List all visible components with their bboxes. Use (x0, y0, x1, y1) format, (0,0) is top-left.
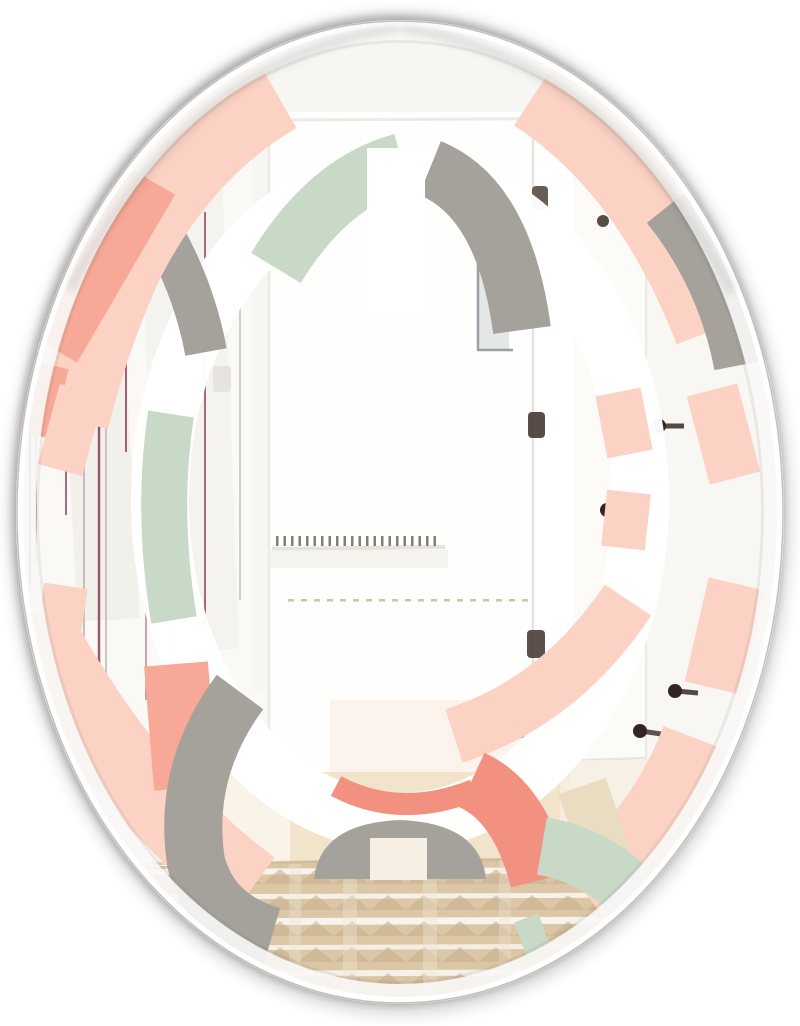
bed-fringe-row-dash (276, 536, 279, 546)
rug-triangle-rows-triangle (586, 973, 622, 988)
bed-fringe-row-dash (314, 536, 317, 546)
bed-fringe-row-dash (336, 536, 339, 546)
rug-triangle-rows-triangle (514, 997, 550, 1012)
mirror-layers (0, 0, 800, 1026)
door-hinge (528, 412, 545, 438)
back-rug-dot-line-dash (314, 599, 320, 602)
bed-fringe-row-dash (404, 536, 407, 546)
rug-triangle-rows-triangle (190, 997, 226, 1012)
bed-shadow-line (272, 547, 445, 549)
pink-block-right-2 (713, 584, 737, 688)
white-notch-top (367, 148, 425, 312)
mint-arc-left (164, 414, 174, 620)
back-rug-dot-line-dash (340, 599, 346, 602)
back-rug-dot-line-dash (522, 599, 528, 602)
bed-fringe-row-dash (381, 536, 384, 546)
wall-hook-head (633, 724, 647, 738)
bed-fringe-row-dash (344, 536, 347, 546)
back-rug-dot-line-dash (470, 599, 476, 602)
back-rug-dot-line-dash (327, 599, 333, 602)
pink-block-left (60, 390, 82, 470)
bed-fringe-row-dash (419, 536, 422, 546)
back-rug-dot-line-dash (496, 599, 502, 602)
back-rug-dot-line-dash (379, 599, 385, 602)
bed-fringe-row-dash (351, 536, 354, 546)
back-rug-dot-line-dash (392, 599, 398, 602)
bed-fringe-row-dash (284, 536, 287, 546)
back-rug-dot-line-dash (509, 599, 515, 602)
gray-dome-notch (370, 838, 427, 880)
under-bed-soft (268, 550, 448, 568)
back-rug-dot-line-dash (353, 599, 359, 602)
back-rug-dot-line-dash (301, 599, 307, 602)
rug-triangle-rows-triangle (550, 973, 586, 988)
back-rug-dot-line-dash (483, 599, 489, 602)
rug-triangle-rows-triangle (586, 997, 622, 1012)
back-rug-dot-line-dash (288, 599, 294, 602)
bed-fringe-row-dash (291, 536, 294, 546)
door-knob (597, 215, 609, 227)
light-switch (213, 366, 231, 392)
back-rug-dot-line-dash (405, 599, 411, 602)
door-hinge (527, 630, 545, 658)
wall-hook-head (668, 684, 682, 698)
back-rug-dot-line-dash (366, 599, 372, 602)
bed-fringe-row-dash (359, 536, 362, 546)
back-rug-dot-line-dash (418, 599, 424, 602)
bed-fringe-row-dash (434, 536, 437, 546)
bed-fringe-row-dash (329, 536, 332, 546)
rug-triangle-rows-triangle (226, 997, 262, 1012)
product-photo (0, 0, 800, 1026)
bed-fringe-row-dash (396, 536, 399, 546)
bed-fringe-row-dash (321, 536, 324, 546)
bed-fringe-row-dash (366, 536, 369, 546)
bed-fringe-row-dash (389, 536, 392, 546)
bed-fringe-row-dash (374, 536, 377, 546)
bed-fringe-row-dash (426, 536, 429, 546)
pink-inner-right-2 (623, 492, 629, 548)
mirror-photo (0, 0, 800, 1026)
rug-triangle-rows-triangle (190, 973, 226, 988)
bed-fringe-row-dash (299, 536, 302, 546)
back-rug-dot-line-dash (444, 599, 450, 602)
pink-block-right-1 (712, 390, 735, 478)
mint-bit-bottom (526, 918, 538, 950)
back-rug-dot-line-dash (431, 599, 437, 602)
rug-triangle-rows-triangle (550, 997, 586, 1012)
back-rug-dot-line-dash (457, 599, 463, 602)
pink-inner-right-1 (618, 392, 630, 454)
bed-fringe-row-dash (411, 536, 414, 546)
bed-fringe-row-dash (306, 536, 309, 546)
rug-triangle-rows-triangle (262, 997, 298, 1012)
